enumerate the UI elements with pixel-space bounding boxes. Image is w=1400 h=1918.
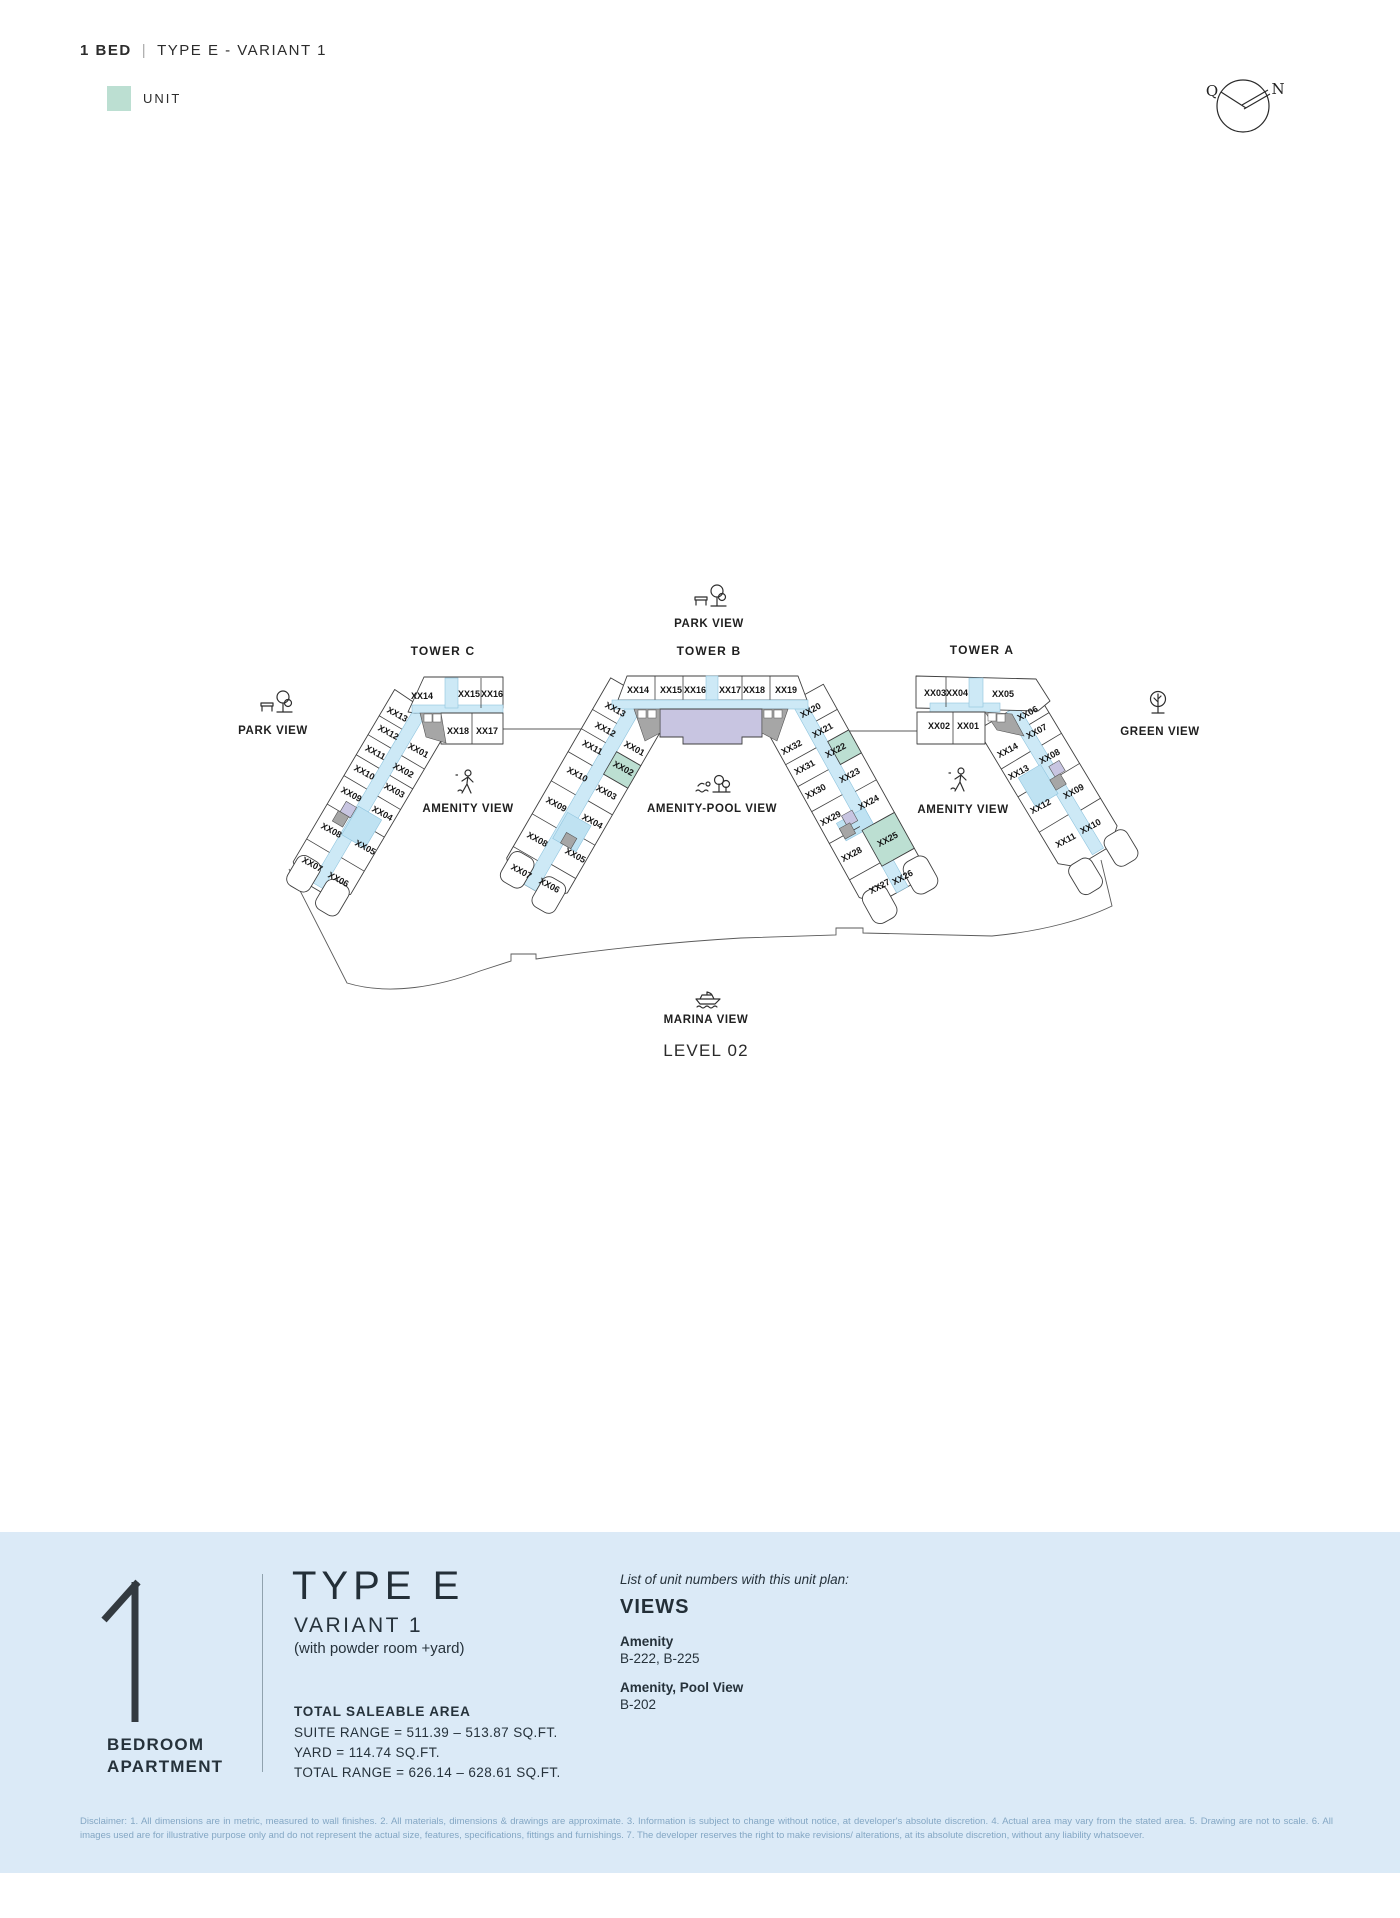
unit-label: XX17: [719, 685, 741, 695]
tower-c-corridor: [445, 678, 458, 708]
unit-label: XX18: [447, 726, 469, 736]
unit-label: XX05: [992, 689, 1014, 699]
unit-label: XX02: [928, 721, 950, 731]
unit-label: XX14: [411, 691, 433, 701]
type-title: TYPE E: [292, 1564, 464, 1609]
variant-label: VARIANT 1: [294, 1614, 423, 1638]
unit-label: XX04: [946, 688, 968, 698]
tower-b-corridor: [706, 676, 718, 700]
yard-area: YARD = 114.74 SQ.FT.: [294, 1745, 440, 1760]
compass-q-label: Q: [1206, 82, 1218, 100]
suite-range: SUITE RANGE = 511.39 – 513.87 SQ.FT.: [294, 1725, 558, 1740]
tower-a-corridor: [969, 678, 983, 707]
marina-view-label: MARINA VIEW: [664, 1014, 749, 1026]
type-info-panel: 1 BEDROOM APARTMENT TYPE E VARIANT 1 (wi…: [0, 1532, 1400, 1873]
compass-qibla-needle: [1221, 92, 1246, 108]
service-box: [424, 714, 432, 722]
unit-label: XX16: [481, 689, 503, 699]
compass: Q N: [1206, 80, 1285, 132]
service-box: [648, 710, 656, 718]
service-box: [988, 713, 996, 721]
tower-b-label: TOWER B: [677, 644, 742, 658]
tower-a-label: TOWER A: [950, 643, 1014, 657]
view-group-label: Amenity: [620, 1634, 673, 1649]
tower-a-corridor: [930, 703, 1000, 712]
unit-label: XX15: [458, 689, 480, 699]
level-label: LEVEL 02: [663, 1041, 749, 1060]
total-range: TOTAL RANGE = 626.14 – 628.61 SQ.FT.: [294, 1765, 561, 1780]
walking-person-icon: [949, 768, 966, 791]
boat-icon: [696, 992, 720, 1008]
walking-person-icon: [456, 770, 473, 793]
unit-label: XX01: [957, 721, 979, 731]
service-box: [433, 714, 441, 722]
unit-label: XX19: [775, 685, 797, 695]
view-group-units: B-222, B-225: [620, 1651, 700, 1666]
tower-b-amenity-block: [660, 709, 762, 744]
unit-label: XX17: [476, 726, 498, 736]
unit-label: XX18: [743, 685, 765, 695]
view-group-units: B-202: [620, 1697, 656, 1712]
variant-note: (with powder room +yard): [294, 1640, 464, 1657]
amenity-pool-view-label: AMENITY-POOL VIEW: [647, 803, 777, 815]
views-heading: VIEWS: [620, 1596, 689, 1619]
unit-label: XX16: [684, 685, 706, 695]
site-boundary: [289, 860, 1112, 989]
park-view-top-label: PARK VIEW: [674, 618, 744, 630]
tree-icon: [1151, 692, 1166, 714]
amenity-view-right-label: AMENITY VIEW: [917, 804, 1008, 816]
disclaimer-text: Disclaimer: 1. All dimensions are in met…: [80, 1815, 1333, 1842]
green-view-label: GREEN VIEW: [1120, 726, 1199, 738]
amenity-view-left-label: AMENITY VIEW: [422, 803, 513, 815]
area-heading: TOTAL SALEABLE AREA: [294, 1704, 471, 1719]
compass-n-label: N: [1271, 80, 1284, 98]
park-view-left-label: PARK VIEW: [238, 725, 308, 737]
tower-b-corridor: [612, 700, 808, 709]
service-box: [764, 710, 772, 718]
tower-c-label: TOWER C: [411, 644, 476, 658]
view-group-label: Amenity, Pool View: [620, 1680, 743, 1695]
unit-label: XX15: [660, 685, 682, 695]
unit-list-intro: List of unit numbers with this unit plan…: [620, 1572, 849, 1587]
unit-label: XX03: [924, 688, 946, 698]
big-number-graphic: [90, 1572, 160, 1732]
unit-label: XX14: [627, 685, 649, 695]
park-bench-icon: [261, 691, 292, 712]
service-box: [997, 714, 1005, 722]
pool-icon: [696, 776, 730, 793]
service-box: [638, 710, 646, 718]
park-bench-icon: [695, 585, 726, 606]
site-plan: Q N: [0, 0, 1400, 1120]
service-box: [774, 710, 782, 718]
vertical-divider: [262, 1574, 263, 1772]
apartment-type-label: BEDROOM APARTMENT: [107, 1734, 223, 1778]
